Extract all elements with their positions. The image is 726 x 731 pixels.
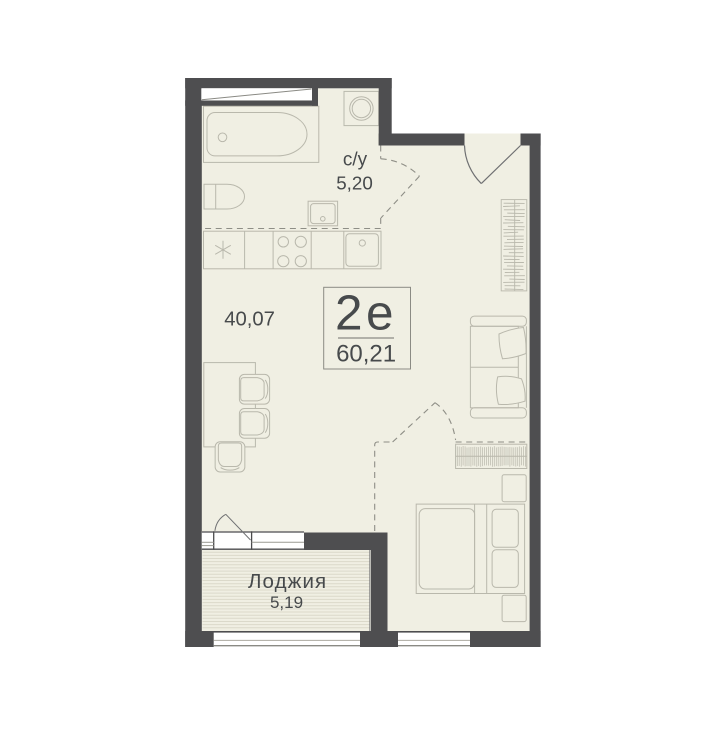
- svg-text:60,21: 60,21: [336, 340, 396, 367]
- svg-text:5,20: 5,20: [336, 173, 373, 194]
- svg-text:2е: 2е: [335, 286, 397, 341]
- svg-text:Лоджия: Лоджия: [248, 570, 327, 593]
- svg-text:5,19: 5,19: [270, 593, 303, 612]
- svg-text:40,07: 40,07: [224, 308, 275, 330]
- svg-text:с/у: с/у: [343, 150, 368, 171]
